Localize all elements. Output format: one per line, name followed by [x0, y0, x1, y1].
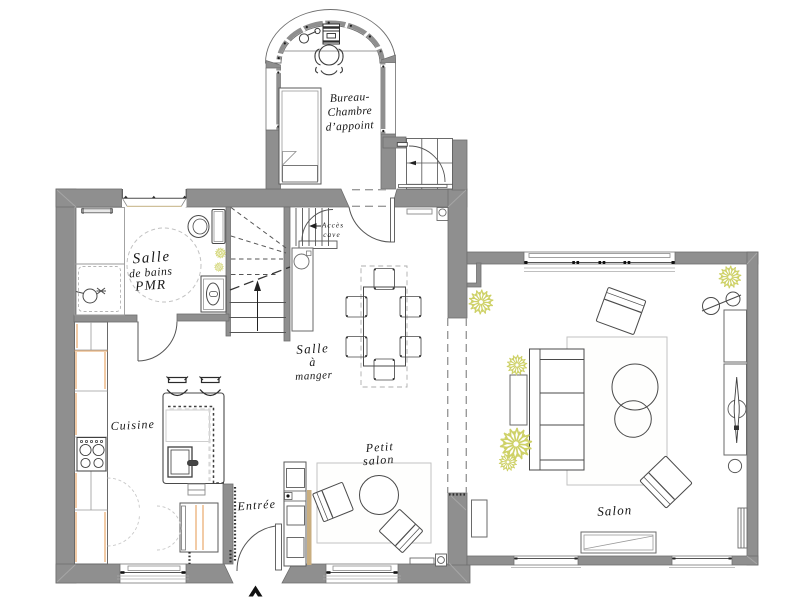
svg-text:Cuisine: Cuisine	[110, 417, 155, 433]
svg-text:Bureau-: Bureau-	[330, 91, 371, 105]
svg-text:cave: cave	[323, 231, 341, 239]
svg-text:d’appoint: d’appoint	[325, 119, 374, 134]
svg-text:Chambre: Chambre	[327, 105, 372, 119]
svg-text:manger: manger	[295, 369, 333, 383]
svg-text:Salle: Salle	[132, 249, 171, 268]
svg-text:à: à	[309, 355, 317, 369]
svg-text:Accès: Accès	[321, 222, 344, 230]
svg-text:PMR: PMR	[134, 276, 167, 293]
svg-text:salon: salon	[363, 452, 395, 468]
svg-text:Entrée: Entrée	[236, 497, 276, 514]
svg-text:Salon: Salon	[597, 502, 633, 519]
